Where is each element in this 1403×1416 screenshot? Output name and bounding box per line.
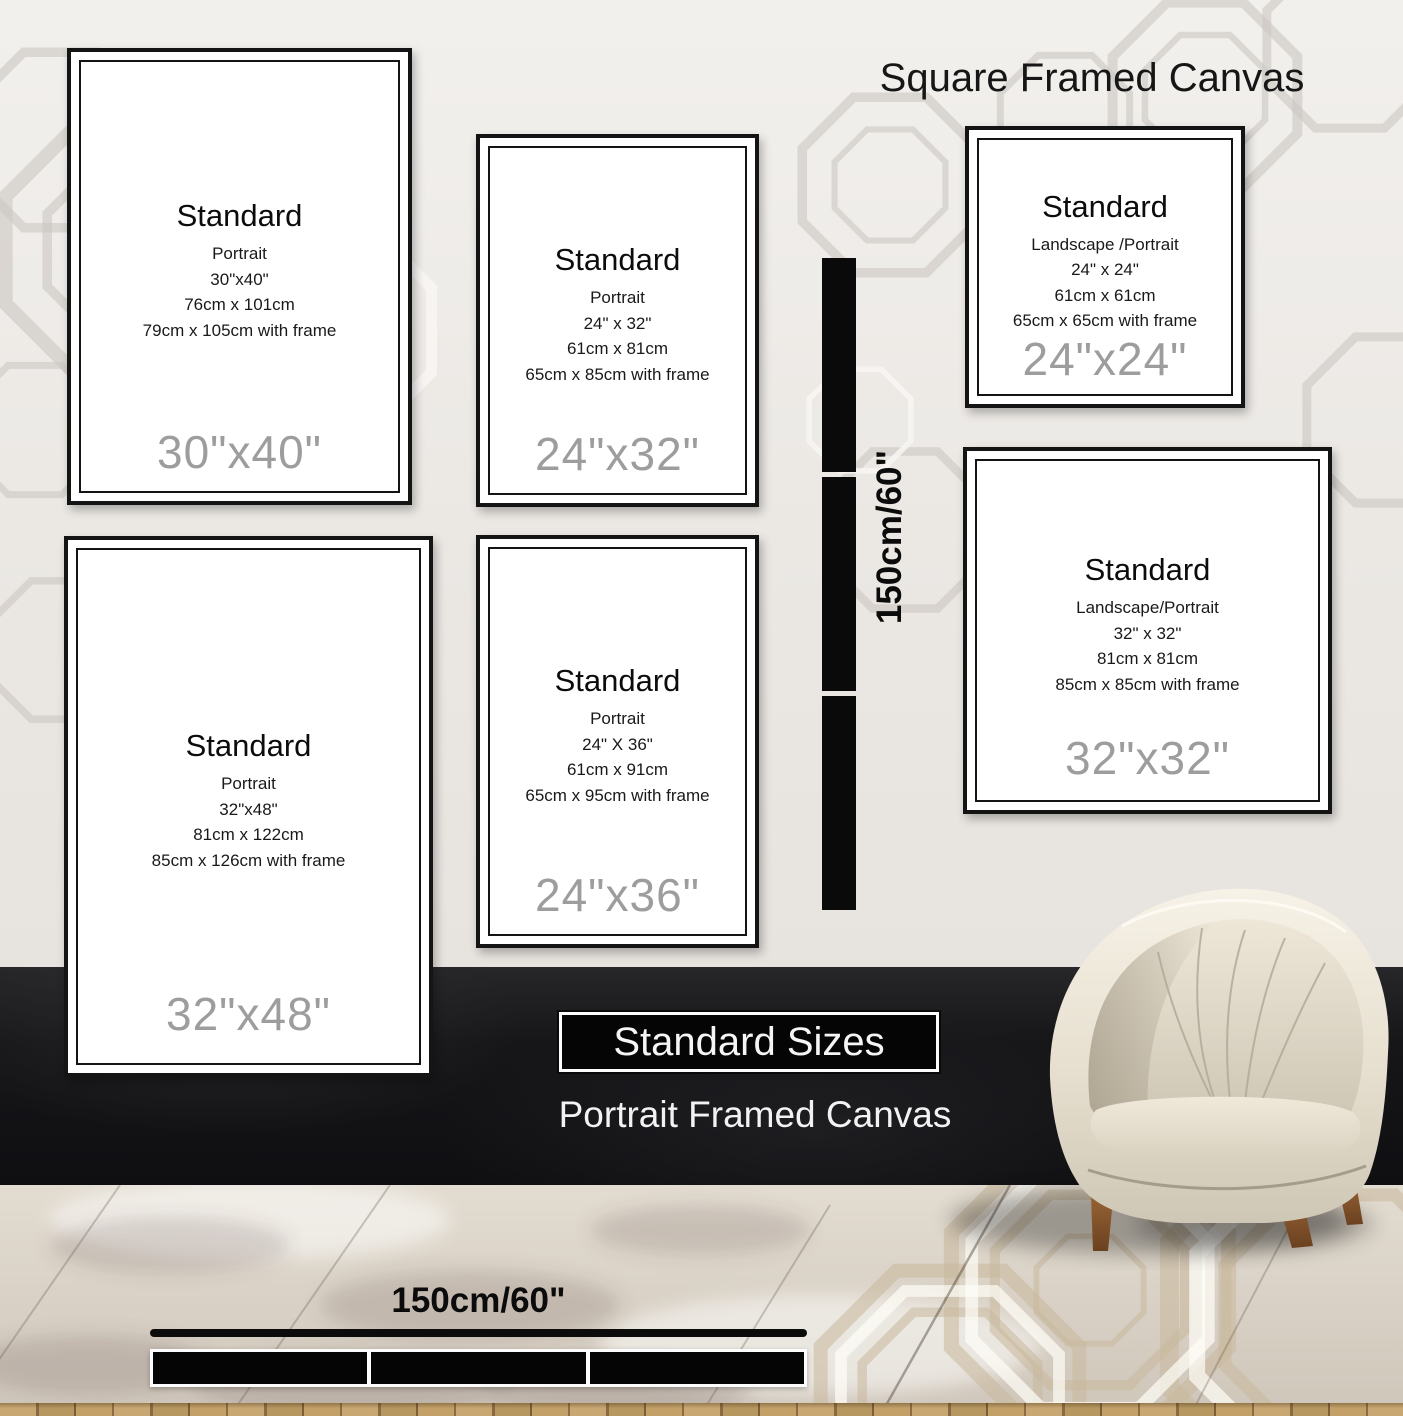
canvas-size-framed: 65cm x 95cm with frame <box>525 783 709 809</box>
size-guide-poster: Square Framed Canvas Standard Portrait 3… <box>0 0 1403 1416</box>
canvas-orientation: Portrait <box>152 771 346 797</box>
canvas-title: Standard <box>152 728 346 764</box>
canvas-orientation: Portrait <box>525 706 709 732</box>
canvas-size-framed: 85cm x 126cm with frame <box>152 848 346 874</box>
canvas-size-label: 24"x36" <box>490 868 745 922</box>
canvas-size-inches: 32" x 32" <box>1055 621 1239 647</box>
canvas-size-cm: 76cm x 101cm <box>143 292 337 318</box>
armchair-illustration <box>900 868 1403 1270</box>
canvas-size-framed: 65cm x 65cm with frame <box>1013 308 1197 334</box>
canvas-title: Standard <box>525 242 709 278</box>
framed-canvas-24x36: Standard Portrait 24" X 36" 61cm x 91cm … <box>476 535 759 948</box>
canvas-size-inches: 30"x40" <box>143 267 337 293</box>
canvas-orientation: Landscape /Portrait <box>1013 232 1197 258</box>
canvas-orientation: Portrait <box>525 285 709 311</box>
framed-canvas-24x32: Standard Portrait 24" x 32" 61cm x 81cm … <box>476 134 759 507</box>
canvas-size-label: 30"x40" <box>81 425 398 479</box>
horizontal-scale-segment <box>371 1352 585 1384</box>
chair-seat-cushion <box>1091 1097 1361 1161</box>
canvas-size-framed: 79cm x 105cm with frame <box>143 318 337 344</box>
canvas-inner-border: Standard Landscape /Portrait 24" x 24" 6… <box>977 138 1233 396</box>
framed-canvas-24x24: Standard Landscape /Portrait 24" x 24" 6… <box>965 126 1245 408</box>
horizontal-scale-bar <box>150 1349 807 1387</box>
canvas-title: Standard <box>1013 189 1197 225</box>
canvas-size-label: 32"x48" <box>78 987 419 1041</box>
canvas-orientation: Landscape/Portrait <box>1055 595 1239 621</box>
vertical-scale-segment <box>822 477 856 691</box>
canvas-size-cm: 61cm x 81cm <box>525 336 709 362</box>
canvas-orientation: Portrait <box>143 241 337 267</box>
standard-sizes-badge-label: Standard Sizes <box>613 1020 884 1065</box>
horizontal-scale-segment <box>590 1352 804 1384</box>
canvas-size-framed: 65cm x 85cm with frame <box>525 362 709 388</box>
vertical-scale-segment <box>822 696 856 910</box>
canvas-spec-text: Standard Portrait 32"x48" 81cm x 122cm 8… <box>152 728 346 873</box>
canvas-size-cm: 81cm x 122cm <box>152 822 346 848</box>
canvas-size-inches: 32"x48" <box>152 797 346 823</box>
horizontal-scale-line <box>150 1329 807 1337</box>
canvas-spec-text: Standard Landscape/Portrait 32" x 32" 81… <box>1055 552 1239 697</box>
canvas-size-inches: 24" x 24" <box>1013 257 1197 283</box>
horizontal-scale-segment <box>153 1352 367 1384</box>
wood-plank-strip <box>0 1403 1403 1416</box>
canvas-title: Standard <box>143 198 337 234</box>
canvas-size-inches: 24" X 36" <box>525 732 709 758</box>
canvas-size-cm: 61cm x 91cm <box>525 757 709 783</box>
canvas-size-cm: 81cm x 81cm <box>1055 646 1239 672</box>
canvas-size-label: 24"x24" <box>979 332 1231 386</box>
canvas-inner-border: Standard Portrait 24" x 32" 61cm x 81cm … <box>488 146 747 495</box>
canvas-size-inches: 24" x 32" <box>525 311 709 337</box>
standard-sizes-badge: Standard Sizes <box>559 1012 939 1072</box>
canvas-size-cm: 61cm x 61cm <box>1013 283 1197 309</box>
canvas-spec-text: Standard Portrait 30"x40" 76cm x 101cm 7… <box>143 198 337 343</box>
canvas-inner-border: Standard Landscape/Portrait 32" x 32" 81… <box>975 459 1320 802</box>
vertical-scale-bar <box>822 258 856 910</box>
canvas-inner-border: Standard Portrait 32"x48" 81cm x 122cm 8… <box>76 548 421 1065</box>
canvas-title: Standard <box>525 663 709 699</box>
vertical-scale-segment <box>822 258 856 472</box>
canvas-inner-border: Standard Portrait 24" X 36" 61cm x 91cm … <box>488 547 747 936</box>
canvas-size-framed: 85cm x 85cm with frame <box>1055 672 1239 698</box>
square-section-title: Square Framed Canvas <box>872 56 1312 101</box>
framed-canvas-32x32: Standard Landscape/Portrait 32" x 32" 81… <box>963 447 1332 814</box>
ceiling-strip <box>0 0 1403 9</box>
canvas-size-label: 24"x32" <box>490 427 745 481</box>
canvas-spec-text: Standard Portrait 24" x 32" 61cm x 81cm … <box>525 242 709 387</box>
framed-canvas-32x48: Standard Portrait 32"x48" 81cm x 122cm 8… <box>64 536 433 1077</box>
canvas-spec-text: Standard Portrait 24" X 36" 61cm x 91cm … <box>525 663 709 808</box>
horizontal-scale-label: 150cm/60" <box>150 1281 807 1321</box>
vertical-scale-label: 150cm/60" <box>864 442 916 632</box>
canvas-title: Standard <box>1055 552 1239 588</box>
canvas-size-label: 32"x32" <box>977 731 1318 785</box>
framed-canvas-30x40: Standard Portrait 30"x40" 76cm x 101cm 7… <box>67 48 412 505</box>
canvas-inner-border: Standard Portrait 30"x40" 76cm x 101cm 7… <box>79 60 400 493</box>
canvas-spec-text: Standard Landscape /Portrait 24" x 24" 6… <box>1013 189 1197 334</box>
